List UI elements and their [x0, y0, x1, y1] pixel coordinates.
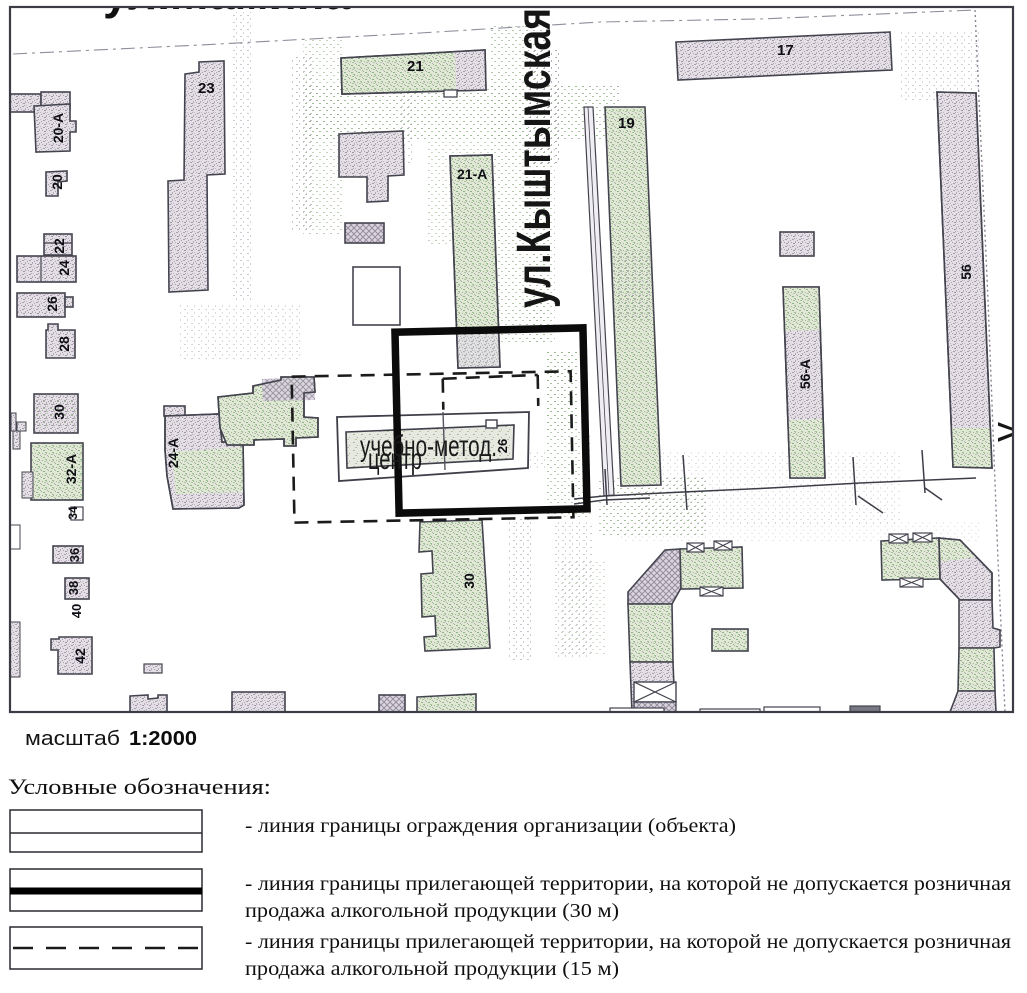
svg-text:36: 36 [67, 548, 82, 562]
svg-text:24-А: 24-А [165, 438, 181, 468]
svg-text:масштаб: масштаб [25, 728, 120, 750]
svg-text:- линия границы ограждения орг: - линия границы ограждения организации (… [245, 815, 736, 837]
svg-text:1:2000: 1:2000 [129, 728, 197, 750]
svg-text:26: 26 [495, 439, 510, 453]
svg-text:ул.Кыштымская: ул.Кыштымская [508, 8, 561, 308]
svg-text:28: 28 [56, 336, 72, 352]
svg-text:26: 26 [44, 296, 60, 312]
svg-text:21-A: 21-A [457, 166, 487, 182]
svg-text:40: 40 [69, 604, 84, 618]
svg-text:- линия границы прилегающей те: - линия границы прилегающей территории, … [245, 931, 1011, 953]
svg-text:20: 20 [49, 174, 65, 190]
svg-text:- линия границы прилегающей те: - линия границы прилегающей территории, … [245, 873, 1011, 895]
svg-text:продажа алкогольной продукции: продажа алкогольной продукции (15 м) [245, 958, 619, 980]
svg-text:центр: центр [368, 443, 422, 476]
svg-text:56: 56 [958, 264, 974, 280]
svg-text:22: 22 [51, 238, 67, 254]
svg-text:30: 30 [51, 404, 67, 420]
svg-text:продажа алкогольной продукции: продажа алкогольной продукции (30 м) [245, 900, 619, 922]
svg-text:32-А: 32-А [63, 454, 79, 484]
svg-text:21: 21 [407, 58, 424, 75]
svg-text:20-А: 20-А [50, 113, 66, 143]
svg-text:56-А: 56-А [797, 359, 813, 389]
svg-text:19: 19 [618, 115, 635, 132]
svg-text:42: 42 [72, 648, 88, 664]
svg-text:24: 24 [56, 260, 72, 276]
svg-text:17: 17 [777, 42, 794, 59]
svg-text:34: 34 [66, 506, 80, 520]
svg-text:23: 23 [198, 80, 215, 97]
svg-text:30: 30 [461, 573, 477, 589]
svg-text:38: 38 [66, 581, 81, 595]
svg-text:Условные обозначения:: Условные обозначения: [8, 774, 271, 799]
